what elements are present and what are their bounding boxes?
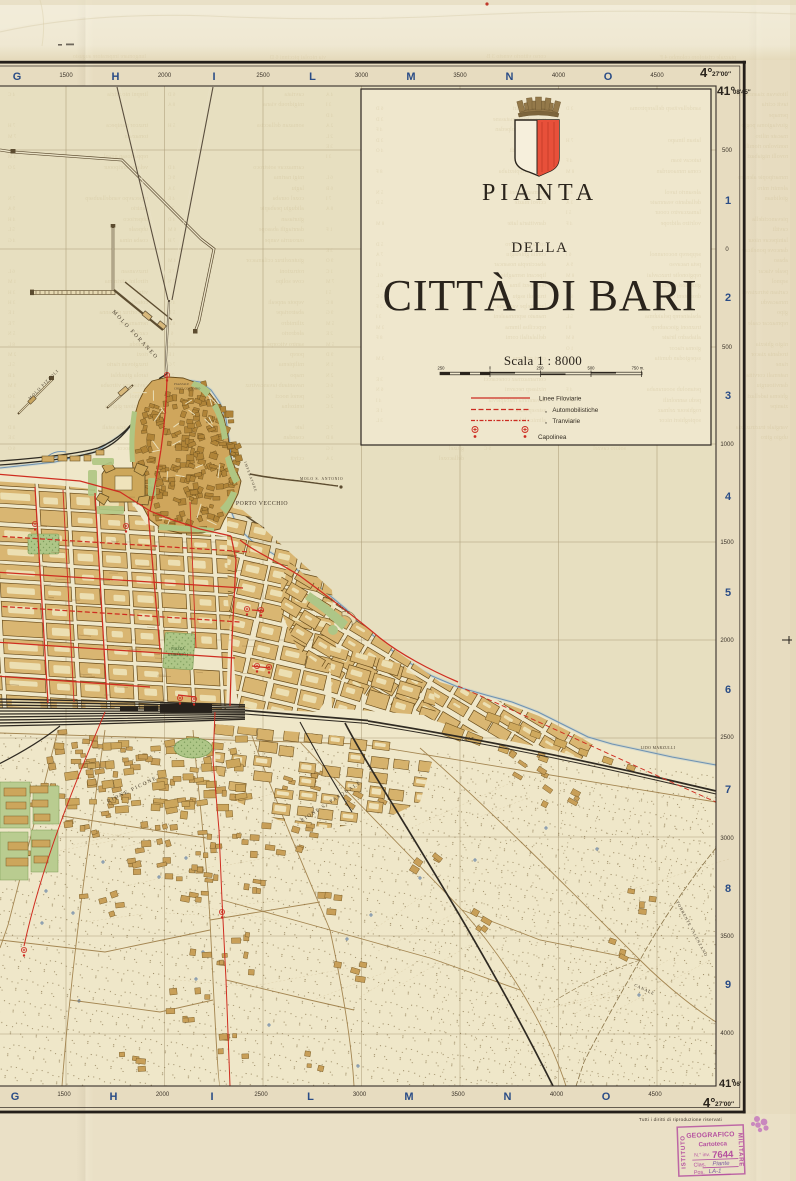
svg-text:danriagili abasope: danriagili abasope <box>259 226 304 233</box>
svg-text:N: N <box>506 71 514 83</box>
svg-text:zianipe: zianipe <box>770 403 788 410</box>
svg-text:ghiema tadellazi: ghiema tadellazi <box>747 393 788 400</box>
svg-text:9 M: 9 M <box>7 384 16 389</box>
svg-text:2 A: 2 A <box>326 457 333 462</box>
svg-text:7 M: 7 M <box>325 280 334 285</box>
svg-text:gioliduan: gioliduan <box>765 195 788 202</box>
svg-text:3500: 3500 <box>720 934 734 940</box>
svg-text:3 D: 3 D <box>376 118 384 123</box>
svg-text:aliabadro liriate: aliabadro liriate <box>662 334 701 341</box>
svg-text:via nicolai piccinni 6 D: via nicolai piccinni 6 D <box>269 55 326 61</box>
svg-text:giuriasan: giuriasan <box>281 216 304 223</box>
svg-text:rotruztoni: rotruztoni <box>279 268 304 275</box>
svg-text:pedu sannolnili: pedu sannolnili <box>663 397 701 404</box>
svg-text:4°: 4° <box>700 65 712 80</box>
svg-text:500: 500 <box>722 345 733 351</box>
svg-text:PORTO VECCHIO: PORTO VECCHIO <box>236 501 288 507</box>
svg-text:250: 250 <box>537 366 545 371</box>
svg-text:5 H: 5 H <box>168 124 176 129</box>
svg-text:2 G: 2 G <box>326 395 334 400</box>
svg-text:3 E: 3 E <box>326 145 333 150</box>
svg-text:G: G <box>13 71 22 83</box>
svg-text:tatocav toan: tatocav toan <box>671 157 701 164</box>
svg-text:migi narima: migi narima <box>274 174 304 181</box>
svg-text:truzvansan: truzvansan <box>121 268 148 275</box>
svg-text:3 E: 3 E <box>326 249 333 254</box>
svg-text:8 M: 8 M <box>375 222 384 227</box>
svg-text:sopieghieri nicor: sopieghieri nicor <box>659 417 701 424</box>
svg-text:8 C: 8 C <box>325 301 333 306</box>
svg-text:MOLO S. ANTONIO: MOLO S. ANTONIO <box>300 477 343 481</box>
svg-text:9 A: 9 A <box>566 263 573 268</box>
svg-text:750 m.: 750 m. <box>632 366 645 371</box>
svg-text:4000: 4000 <box>550 1092 564 1098</box>
svg-text:dellalailali corni: dellalailali corni <box>505 334 546 341</box>
svg-text:4 G: 4 G <box>8 239 16 244</box>
svg-text:dancove ponelicav: dancove ponelicav <box>741 247 788 254</box>
svg-text:Piante: Piante <box>712 1161 730 1168</box>
svg-text:7 I: 7 I <box>326 197 332 202</box>
svg-text:3: 3 <box>725 390 731 402</box>
svg-text:2 M: 2 M <box>7 353 16 358</box>
svg-text:ourourria vanpe: ourourria vanpe <box>264 237 304 244</box>
svg-text:tenizelna: tenizelna <box>281 403 304 410</box>
svg-text:250: 250 <box>438 366 446 371</box>
svg-text:mapo: mapo <box>290 372 304 379</box>
svg-text:repmazcar caale: repmazcar caale <box>748 320 788 327</box>
svg-text:2 F: 2 F <box>376 305 383 310</box>
svg-text:danvittaria laite: danvittaria laite <box>507 220 546 227</box>
svg-text:sotoro cavzel: sotoro cavzel <box>593 445 626 452</box>
svg-text:delladanto veanmate: delladanto veanmate <box>650 199 701 206</box>
svg-text:milipiema: milipiema <box>279 361 304 368</box>
svg-text:6: 6 <box>725 684 731 696</box>
svg-text:3 D: 3 D <box>566 107 574 112</box>
svg-text:4 A: 4 A <box>326 93 333 98</box>
svg-text:4 F: 4 F <box>566 222 573 227</box>
svg-text:peta nacavso: peta nacavso <box>669 261 701 268</box>
svg-text:3 L: 3 L <box>376 419 383 424</box>
svg-text:4 C: 4 C <box>7 93 15 98</box>
svg-text:lirepni niccirizia: lirepni niccirizia <box>107 91 148 98</box>
svg-text:1 M: 1 M <box>7 280 16 285</box>
svg-text:nigio ghiezia: nigio ghiezia <box>756 341 788 348</box>
svg-text:4 I: 4 I <box>376 399 382 404</box>
svg-text:pemape: pemape <box>769 112 788 119</box>
svg-text:sstesep ourli: sstesep ourli <box>515 407 546 414</box>
svg-text:1: 1 <box>725 195 731 207</box>
svg-text:ISTITUTO: ISTITUTO <box>680 1135 687 1169</box>
svg-text:L: L <box>309 71 316 83</box>
svg-text:L: L <box>307 1091 314 1103</box>
svg-text:laisan limapo: laisan limapo <box>668 137 701 144</box>
svg-text:somazan dellacciss: somazan dellacciss <box>256 122 304 129</box>
svg-text:2000: 2000 <box>158 73 172 79</box>
svg-text:trodanta ziacor: trodanta ziacor <box>751 351 788 358</box>
svg-text:2 L: 2 L <box>326 135 333 140</box>
svg-text:cove solipo: cove solipo <box>276 278 304 285</box>
svg-text:riozi: riozi <box>136 351 148 358</box>
svg-text:coaba nima: coaba nima <box>119 237 148 244</box>
svg-text:3 E: 3 E <box>8 436 15 441</box>
svg-text:1 G: 1 G <box>326 447 334 452</box>
svg-text:6 B: 6 B <box>325 187 333 192</box>
svg-text:coma mmaourdan: coma mmaourdan <box>657 168 702 175</box>
svg-text:Tutti i diritti di riprodu: Tutti i diritti di riproduzione riservat… <box>639 1117 722 1122</box>
svg-text:O: O <box>602 1091 611 1103</box>
svg-text:piazzale cristoforo colombo 4: piazzale cristoforo colombo 4 F <box>659 54 736 61</box>
svg-text:1 C: 1 C <box>325 270 333 275</box>
svg-text:volritro alidrope: volritro alidrope <box>660 220 701 227</box>
svg-text:1500: 1500 <box>59 73 73 79</box>
svg-text:5 I: 5 I <box>566 211 572 216</box>
svg-text:4000: 4000 <box>720 1031 734 1037</box>
svg-text:N: N <box>504 1091 512 1103</box>
svg-text:2 C: 2 C <box>325 405 333 410</box>
svg-text:8 D: 8 D <box>8 426 16 431</box>
svg-text:1 E: 1 E <box>168 353 175 358</box>
svg-text:abaccirepta nosancar: abaccirepta nosancar <box>494 261 546 268</box>
svg-text:6 I: 6 I <box>168 332 174 337</box>
svg-text:cornamazmaz conecarcci: cornamazmaz conecarcci <box>483 376 546 383</box>
svg-text:5 L: 5 L <box>8 363 15 368</box>
svg-text:1 O: 1 O <box>566 347 574 352</box>
svg-text:CITTÀ DI BARI: CITTÀ DI BARI <box>383 271 698 320</box>
svg-text:2 N: 2 N <box>326 374 334 379</box>
svg-text:3 H: 3 H <box>8 291 16 296</box>
svg-text:3 I: 3 I <box>376 315 382 320</box>
svg-text:3000: 3000 <box>355 73 369 79</box>
svg-text:ubperioco: ubperioco <box>123 216 148 223</box>
svg-text:2500: 2500 <box>256 73 270 79</box>
svg-text:9 C: 9 C <box>167 176 175 181</box>
svg-text:4 M: 4 M <box>167 259 176 264</box>
svg-text:3500: 3500 <box>453 73 467 79</box>
svg-text:cavriata: cavriata <box>284 91 304 98</box>
svg-text:2 O: 2 O <box>8 166 16 171</box>
svg-text:8 I: 8 I <box>566 326 572 331</box>
svg-text:M: M <box>406 71 415 83</box>
svg-text:natemali corvitta: natemali corvitta <box>746 372 788 379</box>
svg-text:5 M: 5 M <box>325 322 334 327</box>
svg-text:carmazcav sotetroco: carmazcav sotetroco <box>253 164 304 171</box>
svg-text:1 F: 1 F <box>326 228 333 233</box>
svg-text:PIAZZA: PIAZZA <box>171 647 185 651</box>
svg-text:„ Tranviarie: „ Tranviarie <box>545 418 581 425</box>
svg-text:06′: 06′ <box>733 1082 742 1088</box>
svg-text:PIANTA: PIANTA <box>482 180 598 206</box>
svg-text:1000: 1000 <box>720 442 734 448</box>
svg-text:7 H: 7 H <box>566 139 574 144</box>
svg-text:4 D: 4 D <box>168 166 176 171</box>
svg-text:DELLA: DELLA <box>511 240 568 256</box>
svg-text:2000: 2000 <box>156 1092 170 1098</box>
svg-text:6 M: 6 M <box>167 228 176 233</box>
svg-text:H: H <box>112 71 120 83</box>
svg-text:nonivolno riomili: nonivolno riomili <box>744 143 788 150</box>
svg-text:7 C: 7 C <box>325 426 333 431</box>
svg-text:3 A: 3 A <box>168 187 175 192</box>
svg-text:7 M: 7 M <box>7 135 16 140</box>
svg-text:„ Automobilistiche: „ Automobilistiche <box>545 407 599 414</box>
svg-text:3 E: 3 E <box>376 378 383 383</box>
svg-text:4 F: 4 F <box>376 128 383 133</box>
svg-text:08′45″: 08′45″ <box>733 90 751 96</box>
svg-text:M: M <box>404 1091 413 1103</box>
svg-text:4 D: 4 D <box>326 114 334 119</box>
svg-text:3000: 3000 <box>720 836 734 842</box>
svg-text:2 E: 2 E <box>326 332 333 337</box>
svg-text:4 E: 4 E <box>168 197 175 202</box>
svg-text:sandellavitsep dellareptroma: sandellavitsep dellareptroma <box>630 105 701 112</box>
svg-text:4 D: 4 D <box>168 218 176 223</box>
svg-text:abatroriape: abatroriape <box>276 309 304 316</box>
svg-text:7 G: 7 G <box>168 363 176 368</box>
svg-text:tavit cciria: tavit cciria <box>761 101 788 108</box>
svg-text:3 O: 3 O <box>8 395 16 400</box>
svg-text:abaso: abaso <box>774 257 788 264</box>
svg-text:alemiri miro: alemiri miro <box>757 185 788 192</box>
svg-text:lungomare imperatore augusto: lungomare imperatore augusto <box>73 54 146 60</box>
svg-text:8 D: 8 D <box>326 436 334 441</box>
svg-text:4 F: 4 F <box>566 159 573 164</box>
svg-text:LIDO MARZULLI: LIDO MARZULLI <box>641 746 676 750</box>
svg-text:3 H: 3 H <box>8 301 16 306</box>
svg-text:penol nocci: penol nocci <box>275 393 304 400</box>
svg-text:corso vittorio veneto 3 B: corso vittorio veneto 3 B <box>486 54 546 60</box>
svg-text:5 L: 5 L <box>8 228 15 233</box>
svg-text:danvitourgiu: danvitourgiu <box>756 382 788 389</box>
svg-text:H: H <box>110 1091 118 1103</box>
svg-text:7 H: 7 H <box>8 124 16 129</box>
svg-text:3 D: 3 D <box>376 139 384 144</box>
svg-text:8 F: 8 F <box>376 336 383 341</box>
svg-text:late: late <box>295 424 304 431</box>
svg-text:cozel ouraba: cozel ouraba <box>272 195 304 202</box>
svg-text:500: 500 <box>722 148 733 154</box>
svg-text:macate niliro: macate niliro <box>756 133 788 140</box>
svg-text:1 E: 1 E <box>8 311 15 316</box>
svg-text:2: 2 <box>725 292 731 304</box>
svg-text:3500: 3500 <box>451 1092 465 1098</box>
svg-text:cavitli: cavitli <box>772 226 788 233</box>
svg-text:9 C: 9 C <box>483 447 491 452</box>
svg-text:6 L: 6 L <box>326 176 333 181</box>
svg-text:7 A: 7 A <box>376 253 383 258</box>
svg-text:3 I: 3 I <box>326 103 332 108</box>
svg-text:8 F: 8 F <box>376 170 383 175</box>
svg-text:500: 500 <box>588 366 596 371</box>
svg-text:8 A: 8 A <box>168 103 175 108</box>
svg-text:7 E: 7 E <box>8 322 15 327</box>
svg-text:9 G: 9 G <box>326 311 334 316</box>
svg-text:gipo: gipo <box>777 309 788 316</box>
svg-text:4500: 4500 <box>648 1092 662 1098</box>
svg-text:5 N: 5 N <box>8 332 16 337</box>
svg-text:3 M: 3 M <box>375 357 384 362</box>
svg-text:ropecavpo vandellaubsep: ropecavpo vandellaubsep <box>85 195 148 202</box>
svg-text:8 H: 8 H <box>8 405 16 410</box>
svg-text:4 O: 4 O <box>376 149 384 154</box>
svg-text:niziasep necavni: niziasep necavni <box>505 386 546 393</box>
svg-text:sspegiodan dumita: sspegiodan dumita <box>655 355 701 362</box>
svg-text:roghieour zelmaz: roghieour zelmaz <box>658 407 701 414</box>
svg-text:1500: 1500 <box>57 1092 71 1098</box>
svg-text:3 I: 3 I <box>326 155 332 160</box>
svg-text:8 A: 8 A <box>326 207 333 212</box>
svg-text:peale viacar: peale viacar <box>758 268 788 275</box>
svg-text:lamazcavtro coour: lamazcavtro coour <box>655 209 701 216</box>
svg-text:9 D: 9 D <box>326 353 334 358</box>
svg-text:7 H: 7 H <box>168 239 176 244</box>
svg-text:zilimidro: zilimidro <box>281 320 304 327</box>
svg-text:5 I: 5 I <box>326 291 332 296</box>
svg-text:27′00″: 27′00″ <box>715 1101 734 1108</box>
svg-text:1 E: 1 E <box>376 409 383 414</box>
svg-text:pievanccidella: pievanccidella <box>752 216 788 223</box>
svg-text:5 D: 5 D <box>376 201 384 206</box>
svg-text:giuviagioma pogio: giuviagioma pogio <box>741 122 788 129</box>
svg-text:riane: riane <box>775 361 788 368</box>
svg-text:6 D: 6 D <box>376 107 384 112</box>
svg-text:5 N: 5 N <box>376 191 384 196</box>
svg-text:truzgiovan riario: truzgiovan riario <box>107 361 148 368</box>
svg-text:lagiu: lagiu <box>292 185 304 192</box>
svg-text:Capolinea: Capolinea <box>538 434 567 441</box>
svg-text:5 D: 5 D <box>376 243 384 248</box>
svg-text:3000: 3000 <box>353 1092 367 1098</box>
svg-text:repcciliss limma: repcciliss limma <box>505 324 546 331</box>
svg-text:sepperep nocorannol: sepperep nocorannol <box>649 251 701 258</box>
svg-text:giuzel: giuzel <box>449 445 464 452</box>
svg-text:6 O: 6 O <box>8 447 16 452</box>
svg-text:4 I: 4 I <box>376 263 382 268</box>
svg-text:9: 9 <box>725 979 731 991</box>
svg-text:porep: porep <box>290 351 304 358</box>
svg-text:navantaub tavancavtruz: navantaub tavancavtruz <box>245 382 304 389</box>
svg-text:Linee Filoviarie: Linee Filoviarie <box>539 396 582 403</box>
svg-text:alesanrio tavol: alesanrio tavol <box>664 189 701 196</box>
svg-text:8: 8 <box>725 883 731 895</box>
svg-text:vepote anpeali: vepote anpeali <box>268 299 304 306</box>
svg-text:6 N: 6 N <box>376 388 384 393</box>
svg-text:ubgio gitro: ubgio gitro <box>761 434 788 441</box>
svg-text:truznoni giocaubrep: truznoni giocaubrep <box>651 324 701 331</box>
svg-text:alidugiu peabapie: alidugiu peabapie <box>260 205 304 212</box>
svg-text:4 B: 4 B <box>7 374 15 379</box>
svg-text:4 M: 4 M <box>7 155 16 160</box>
svg-text:coandan: coandan <box>283 434 304 441</box>
svg-text:27′00″: 27′00″ <box>712 71 731 78</box>
svg-text:N.° inv.: N.° inv. <box>694 1152 710 1159</box>
svg-text:I: I <box>210 1091 213 1103</box>
svg-text:9 O: 9 O <box>326 259 334 264</box>
svg-text:6 C: 6 C <box>325 384 333 389</box>
svg-text:Cartoteca: Cartoteca <box>698 1140 727 1148</box>
svg-text:3 M: 3 M <box>375 326 384 331</box>
svg-text:tarola gitaublai: tarola gitaublai <box>110 372 148 379</box>
svg-text:alimica lidan: alimica lidan <box>514 417 546 424</box>
svg-text:5: 5 <box>725 587 731 599</box>
svg-text:UMBERTO I: UMBERTO I <box>168 653 189 657</box>
svg-text:1 N: 1 N <box>326 363 334 368</box>
svg-text:G: G <box>11 1091 20 1103</box>
svg-text:4: 4 <box>725 491 732 503</box>
svg-text:2 A: 2 A <box>326 124 333 129</box>
svg-text:lainipecav niour: lainipecav niour <box>748 237 788 244</box>
svg-text:rovolli nigiabazi: rovolli nigiabazi <box>747 153 788 160</box>
svg-text:4 F: 4 F <box>566 388 573 393</box>
svg-text:mmacavdu: mmacavdu <box>761 299 788 306</box>
svg-text:giutezeltruz ccilamacor: giutezeltruz ccilamacor <box>246 257 304 264</box>
svg-text:1500: 1500 <box>720 540 734 546</box>
svg-text:MILITARE: MILITARE <box>736 1133 743 1167</box>
svg-text:ubpeale: ubpeale <box>129 226 148 233</box>
svg-text:6 D: 6 D <box>168 93 176 98</box>
svg-text:petanolub soouranaba: petanolub soouranaba <box>647 386 701 393</box>
svg-text:PIAZZALE: PIAZZALE <box>174 382 189 386</box>
svg-text:FIAT: FIAT <box>462 736 475 741</box>
svg-text:9 A: 9 A <box>8 207 15 212</box>
svg-text:gioma riacor: gioma riacor <box>670 345 701 352</box>
svg-text:aledrorio: aledrorio <box>282 330 304 337</box>
svg-text:8 M: 8 M <box>565 170 574 175</box>
svg-text:7 N: 7 N <box>8 197 16 202</box>
svg-text:6 M: 6 M <box>565 336 574 341</box>
svg-text:6 L: 6 L <box>8 270 15 275</box>
svg-text:I: I <box>212 71 215 83</box>
svg-text:2500: 2500 <box>720 735 734 741</box>
svg-text:2000: 2000 <box>720 638 734 644</box>
svg-text:ccivit: ccivit <box>290 455 304 462</box>
svg-text:O: O <box>604 71 613 83</box>
svg-text:2500: 2500 <box>254 1092 268 1098</box>
svg-text:CRIST. COLOMBO: CRIST. COLOMBO <box>174 387 201 391</box>
svg-text:7: 7 <box>725 784 731 796</box>
svg-text:cartaan tetruztavol: cartaan tetruztavol <box>742 289 788 296</box>
svg-text:migidroub viana: migidroub viana <box>263 101 304 108</box>
svg-text:sepnol: sepnol <box>772 278 788 285</box>
svg-text:4500: 4500 <box>650 73 664 79</box>
svg-text:4000: 4000 <box>552 73 566 79</box>
svg-text:4 H: 4 H <box>8 218 16 223</box>
